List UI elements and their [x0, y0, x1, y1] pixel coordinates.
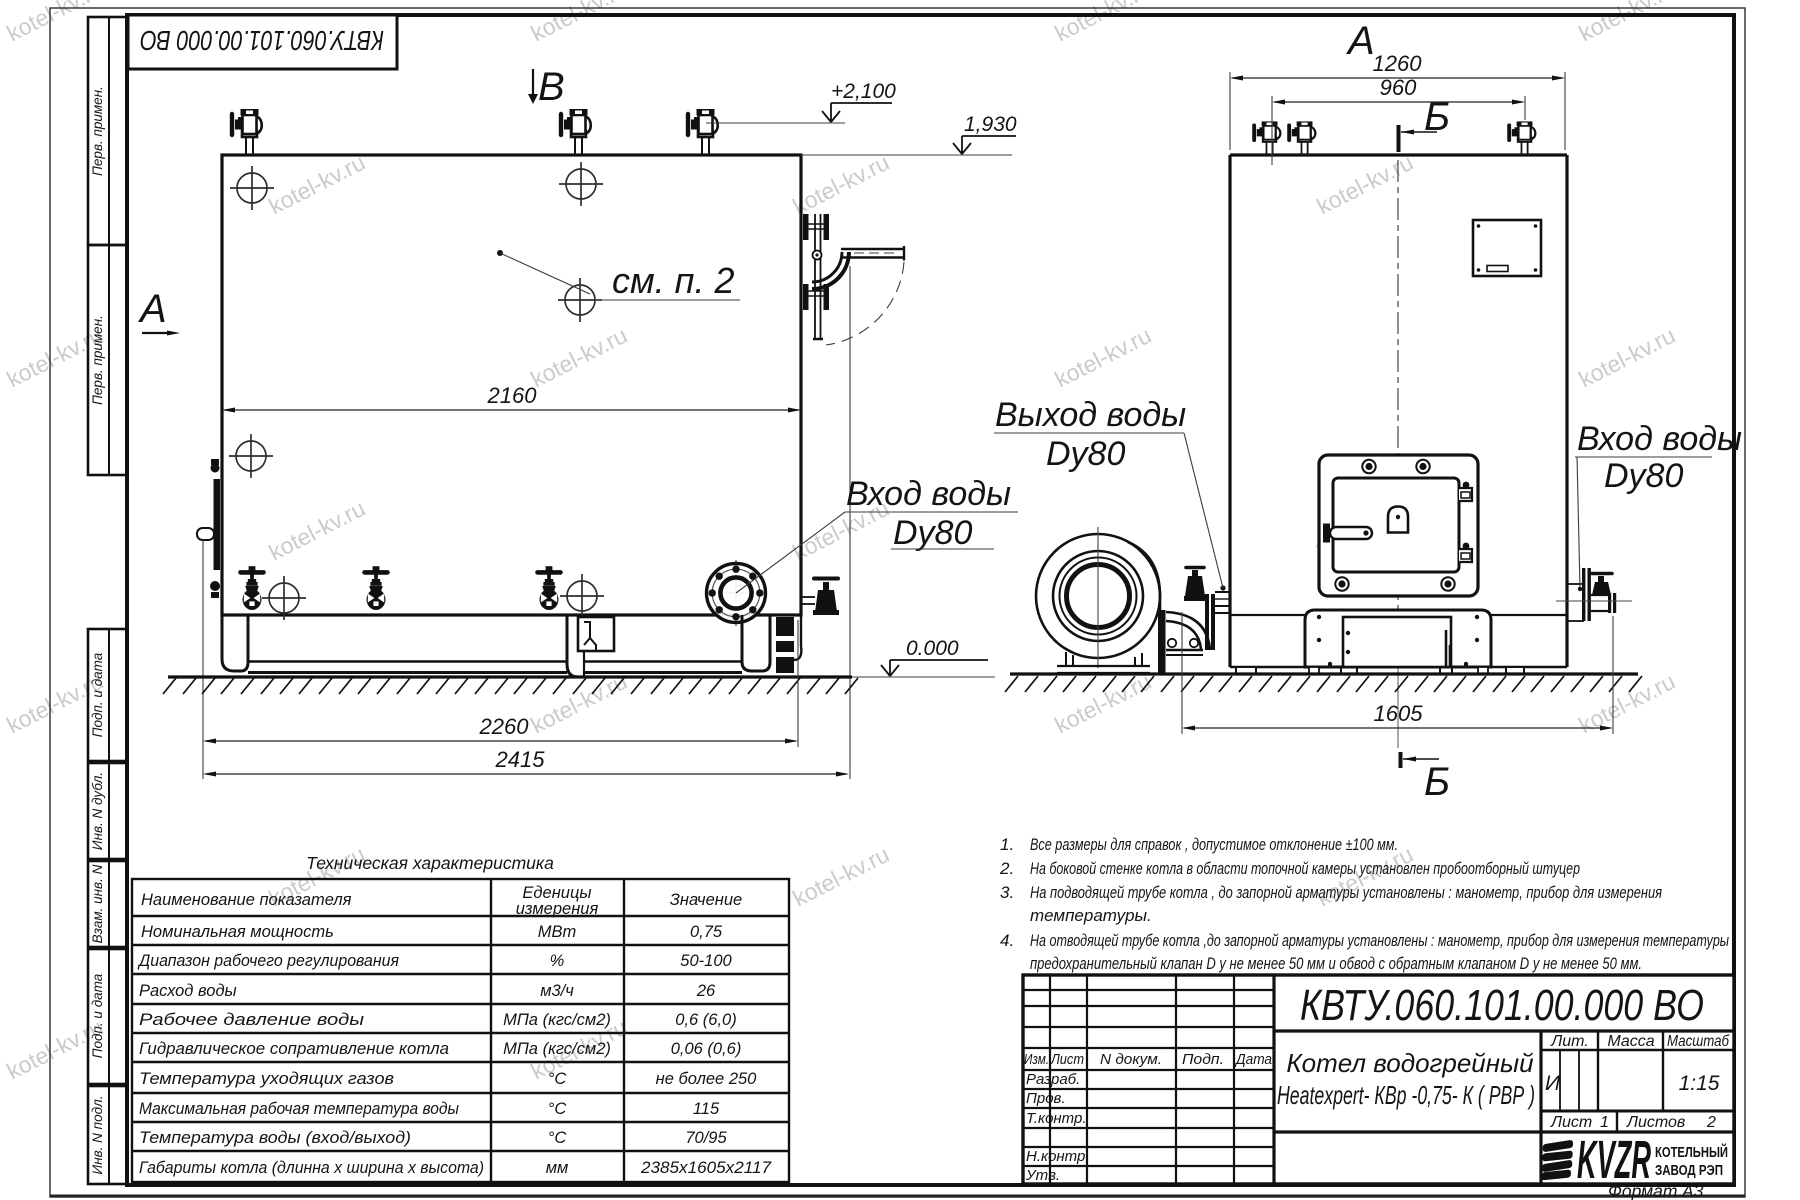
svg-text:Инв. N дубл.: Инв. N дубл.	[90, 772, 105, 850]
svg-text:Значение: Значение	[670, 891, 742, 909]
svg-text:Heatexpert- КВр -0,75- К ( РВР: Heatexpert- КВр -0,75- К ( РВР )	[1277, 1080, 1535, 1110]
svg-text:Перв. примен.: Перв. примен.	[90, 86, 105, 176]
svg-text:Лист: Лист	[1550, 1114, 1592, 1131]
svg-text:Разраб.: Разраб.	[1026, 1071, 1080, 1088]
svg-text:Расход воды: Расход воды	[139, 982, 237, 1000]
svg-text:Изм.: Изм.	[1024, 1051, 1049, 1068]
svg-text:Все размеры для справок , допу: Все размеры для справок , допустимое отк…	[1030, 835, 1398, 854]
svg-text:Утв.: Утв.	[1025, 1167, 1060, 1184]
svg-text:КВТУ.060.101.00.000 ВО: КВТУ.060.101.00.000 ВО	[1300, 981, 1704, 1030]
svg-text:2.: 2.	[999, 859, 1014, 878]
svg-text:Инв. N подл.: Инв. N подл.	[90, 1096, 105, 1175]
svg-text:4.: 4.	[1000, 931, 1014, 950]
svg-text:Лит.: Лит.	[1550, 1033, 1588, 1050]
svg-text:Т.контр.: Т.контр.	[1026, 1110, 1087, 1127]
svg-text:МВт: МВт	[538, 923, 577, 941]
svg-text:Перв. примен.: Перв. примен.	[90, 315, 105, 405]
svg-text:А: А	[138, 287, 167, 331]
svg-text:На подводящей трубе котла ,: На подводящей трубе котла , до запорной …	[1030, 883, 1662, 902]
svg-text:Гидравлическое сопративление к: Гидравлическое сопративление котла	[139, 1040, 449, 1058]
svg-text:Рабочее давление воды: Рабочее давление воды	[139, 1011, 364, 1029]
svg-text:м3/ч: м3/ч	[540, 982, 574, 1000]
svg-text:Температура воды (вход/выход): Температура воды (вход/выход)	[139, 1129, 411, 1147]
svg-text:Н.контр.: Н.контр.	[1026, 1148, 1090, 1165]
svg-text:не более 250: не более 250	[656, 1070, 758, 1088]
svg-text:Максимальная рабочая температу: Максимальная рабочая температура воды	[139, 1100, 459, 1118]
svg-text:В: В	[538, 65, 565, 109]
svg-text:Вход воды: Вход воды	[846, 475, 1011, 513]
svg-text:°С: °С	[548, 1070, 567, 1088]
svg-text:Дата: Дата	[1234, 1051, 1272, 1068]
svg-text:2260: 2260	[479, 714, 530, 739]
svg-text:Габариты котла (длинна х ширин: Габариты котла (длинна х ширина х высота…	[139, 1159, 484, 1177]
svg-text:0,6 (6,0): 0,6 (6,0)	[675, 1011, 736, 1029]
svg-text:Выход воды: Выход воды	[995, 396, 1186, 434]
svg-text:0,06 (0,6): 0,06 (0,6)	[671, 1040, 742, 1058]
svg-text:Подп.: Подп.	[1182, 1051, 1224, 1068]
svg-text:Б: Б	[1424, 760, 1450, 804]
svg-text:Техническая характеристика: Техническая характеристика	[306, 853, 554, 873]
svg-text:+2,100: +2,100	[831, 80, 896, 103]
svg-text:МПа (кгс/см2): МПа (кгс/см2)	[503, 1011, 611, 1029]
svg-text:Номинальная мощность: Номинальная мощность	[141, 923, 334, 941]
svg-text:Dy80: Dy80	[1046, 435, 1125, 473]
svg-text:Формат: Формат	[1608, 1181, 1678, 1200]
svg-text:На отводящей трубе котла ,до з: На отводящей трубе котла ,до запорной ар…	[1030, 931, 1736, 950]
svg-text:1260: 1260	[1373, 51, 1423, 76]
svg-text:26: 26	[696, 982, 716, 1000]
svg-text:Наименование показателя: Наименование показателя	[141, 891, 352, 909]
svg-text:°С: °С	[548, 1100, 567, 1118]
svg-text:70/95: 70/95	[685, 1129, 727, 1147]
svg-text:2160: 2160	[487, 383, 538, 408]
svg-text:%: %	[550, 952, 565, 970]
svg-text:Листов: Листов	[1626, 1114, 1685, 1131]
svg-text:МПа (кгс/см2): МПа (кгс/см2)	[503, 1040, 611, 1058]
svg-text:°С: °С	[548, 1129, 567, 1147]
svg-text:И: И	[1545, 1072, 1561, 1095]
svg-text:Диапазон рабочего регулировани: Диапазон рабочего регулирования	[137, 952, 399, 970]
svg-text:мм: мм	[546, 1159, 569, 1177]
svg-text:Взам. инв. N: Взам. инв. N	[90, 864, 105, 943]
svg-text:ЗАВОД РЭП: ЗАВОД РЭП	[1655, 1163, 1723, 1179]
svg-text:0,75: 0,75	[690, 923, 723, 941]
svg-text:измерения: измерения	[516, 900, 599, 918]
svg-text:А3: А3	[1681, 1181, 1704, 1200]
svg-text:Dy80: Dy80	[1604, 457, 1683, 495]
svg-text:см. п. 2: см. п. 2	[612, 260, 735, 301]
svg-text:50-100: 50-100	[680, 952, 732, 970]
svg-text:960: 960	[1380, 75, 1417, 100]
svg-text:предохранительный клапан D у: предохранительный клапан D у не менее 50…	[1030, 954, 1642, 973]
svg-text:А: А	[1346, 19, 1375, 63]
svg-text:1:15: 1:15	[1679, 1072, 1720, 1095]
svg-text:2: 2	[1706, 1114, 1716, 1131]
svg-text:1.: 1.	[1000, 835, 1014, 854]
svg-text:1605: 1605	[1374, 701, 1424, 726]
svg-text:Масса: Масса	[1607, 1033, 1654, 1050]
svg-text:115: 115	[693, 1100, 720, 1118]
svg-text:Подп. и дата: Подп. и дата	[90, 973, 105, 1058]
svg-text:На боковой стенке котла в обла: На боковой стенке котла в области топочн…	[1030, 859, 1580, 878]
svg-text:Лист: Лист	[1050, 1051, 1084, 1068]
svg-text:3.: 3.	[1000, 883, 1014, 902]
svg-text:КОТЕЛЬНЫЙ: КОТЕЛЬНЫЙ	[1655, 1143, 1728, 1161]
svg-text:Пров.: Пров.	[1026, 1090, 1066, 1107]
svg-text:0.000: 0.000	[906, 637, 959, 660]
svg-text:КВТУ.060.101.00.000 ВО: КВТУ.060.101.00.000 ВО	[140, 25, 384, 56]
svg-text:N докум.: N докум.	[1100, 1051, 1162, 1068]
svg-text:1: 1	[1600, 1114, 1609, 1131]
svg-text:2385х1605х2117: 2385х1605х2117	[640, 1159, 772, 1177]
svg-text:Температура уходящих газов: Температура уходящих газов	[139, 1070, 394, 1088]
svg-text:Подп. и дата: Подп. и дата	[90, 652, 105, 737]
svg-text:Б: Б	[1424, 95, 1450, 139]
svg-text:Масштаб: Масштаб	[1667, 1033, 1730, 1050]
svg-text:1,930: 1,930	[964, 113, 1017, 136]
svg-text:температуры.: температуры.	[1030, 906, 1152, 925]
svg-text:Вход воды: Вход воды	[1577, 420, 1742, 458]
svg-text:Котел водогрейный: Котел водогрейный	[1286, 1048, 1533, 1078]
svg-text:Dy80: Dy80	[893, 514, 972, 552]
svg-text:2415: 2415	[495, 747, 546, 772]
